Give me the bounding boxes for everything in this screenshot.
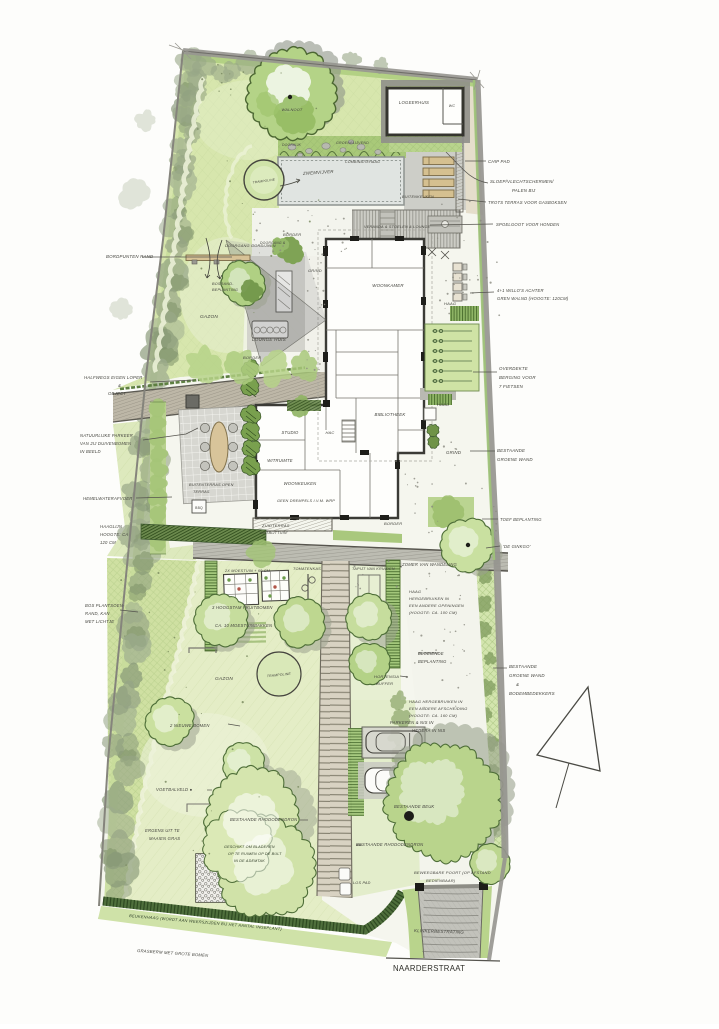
svg-text:ZOMER VAN WANDELING: ZOMER VAN WANDELING (401, 562, 457, 567)
svg-text:'ONTBIJTTUIN': 'ONTBIJTTUIN' (259, 531, 288, 535)
svg-text:TERRAS: TERRAS (193, 490, 210, 494)
svg-text:BOS PLANTSOEN-: BOS PLANTSOEN- (85, 603, 125, 608)
svg-text:BODEMBEDEKKERS: BODEMBEDEKKERS (509, 691, 555, 696)
svg-text:BOSRAND-: BOSRAND- (212, 282, 234, 286)
svg-text:IN BEELD: IN BEELD (80, 449, 101, 454)
svg-text:2X MOESTUIN + 60 CM: 2X MOESTUIN + 60 CM (224, 569, 271, 573)
svg-text:BEDIENBAAR): BEDIENBAAR) (426, 878, 456, 883)
svg-text:CHIP PAD: CHIP PAD (488, 159, 510, 164)
svg-text:VERANDA & STOELEN & LOUNGE: VERANDA & STOELEN & LOUNGE (364, 225, 431, 229)
svg-text:GESCHIKT OM BLADEREN: GESCHIKT OM BLADEREN (224, 845, 275, 849)
svg-text:BESTAANDE RHODODENDRON: BESTAANDE RHODODENDRON (230, 817, 298, 822)
svg-text:BEWEEGBARE POORT (OP AFSTAND: BEWEEGBARE POORT (OP AFSTAND (414, 870, 491, 875)
svg-text:HERGEBRUIKEN IN: HERGEBRUIKEN IN (409, 596, 449, 601)
svg-text:VAN 2IJ DUIVENBOMEN: VAN 2IJ DUIVENBOMEN (80, 441, 132, 446)
svg-text:LOUNGE HUIS: LOUNGE HUIS (252, 337, 287, 342)
svg-text:LOS PAD: LOS PAD (353, 881, 371, 885)
svg-text:BORDER: BORDER (243, 355, 261, 360)
svg-text:HEDERA IN NIS: HEDERA IN NIS (412, 728, 445, 733)
svg-text:GREN WALND (HOOGTE: 120CM): GREN WALND (HOOGTE: 120CM) (497, 296, 569, 301)
svg-text:BUITENTERRAS OPEN: BUITENTERRAS OPEN (189, 483, 234, 487)
svg-text:BIBLIOTHEEK: BIBLIOTHEEK (375, 412, 407, 417)
svg-text:EEN ANDERE AFSCHEIDING: EEN ANDERE AFSCHEIDING (409, 706, 468, 711)
svg-text:COMBINATIEHAAG: COMBINATIEHAAG (345, 160, 380, 164)
svg-text:HAAG: HAAG (409, 589, 421, 594)
svg-text:BESTAANDE: BESTAANDE (509, 664, 537, 669)
svg-text:TOMATENKAS: TOMATENKAS (293, 567, 321, 571)
svg-text:GROENE WAND: GROENE WAND (497, 457, 533, 462)
svg-text:BUFFER: BUFFER (376, 681, 393, 686)
svg-text:ERGENS UIT TE: ERGENS UIT TE (145, 828, 180, 833)
svg-text:&: & (118, 383, 121, 388)
svg-text:BESTAANDE RHODODENDRON: BESTAANDE RHODODENDRON (356, 842, 424, 847)
svg-text:BORDPUNTEN RAND: BORDPUNTEN RAND (106, 254, 154, 259)
svg-text:GAZON: GAZON (215, 676, 233, 682)
svg-text:WOONKAMER: WOONKAMER (372, 283, 404, 288)
svg-text:HAC: HAC (325, 430, 334, 435)
svg-text:GRIND: GRIND (446, 450, 462, 455)
svg-text:HAAG: HAAG (437, 402, 449, 407)
svg-text:GROENBLIJVEND: GROENBLIJVEND (336, 141, 369, 145)
svg-text:VOETBALVELD ●: VOETBALVELD ● (156, 787, 193, 792)
svg-text:EEN ANDERE OPENINGEN: EEN ANDERE OPENINGEN (409, 603, 464, 608)
svg-text:WALNOOT: WALNOOT (282, 107, 303, 112)
svg-text:7 FIETSEN: 7 FIETSEN (499, 384, 524, 389)
svg-text:OP TE RUIMEN OP DE BULT: OP TE RUIMEN OP DE BULT (228, 852, 282, 856)
svg-text:TOEF BEPLANTING: TOEF BEPLANTING (500, 517, 542, 522)
svg-text:WC: WC (449, 104, 456, 108)
svg-text:MAAIEN GRAS: MAAIEN GRAS (149, 836, 180, 841)
svg-text:BORDER: BORDER (283, 232, 301, 237)
svg-text:IN DE ADEMTAK: IN DE ADEMTAK (234, 859, 265, 863)
svg-text:DOORGANG &: DOORGANG & (260, 241, 286, 245)
svg-text:TROTS TERRAS VOOR GASBOKSEN: TROTS TERRAS VOOR GASBOKSEN (488, 200, 567, 205)
svg-text:GRIND: GRIND (308, 268, 322, 273)
svg-text:OVERDEKTE: OVERDEKTE (499, 366, 528, 371)
svg-text:ZUIDTERRAS: ZUIDTERRAS (261, 523, 290, 528)
svg-text:BORDER: BORDER (384, 521, 402, 526)
svg-text:WITRUIMTE: WITRUIMTE (267, 458, 293, 463)
svg-text:HORTENSIA: HORTENSIA (374, 674, 399, 679)
svg-text:CA. 10 MOESTUINBAKKEN: CA. 10 MOESTUINBAKKEN (215, 623, 273, 628)
svg-text:SLOEP/VLECHTSCHERMEN/: SLOEP/VLECHTSCHERMEN/ (490, 179, 554, 184)
svg-text:GEEN DREMPELS I.V.M. WRP: GEEN DREMPELS I.V.M. WRP (277, 499, 335, 503)
svg-text:&: & (516, 682, 519, 687)
svg-text:RAND, KAN: RAND, KAN (85, 611, 110, 616)
svg-text:DOORKIJK: DOORKIJK (282, 143, 301, 147)
svg-text:BESTAANDE BEUK: BESTAANDE BEUK (394, 804, 434, 809)
svg-text:NATUURLIJKE PARKEER: NATUURLIJKE PARKEER (80, 433, 133, 438)
svg-text:3 HOOGSTAM FRUITBOMEN: 3 HOOGSTAM FRUITBOMEN (212, 605, 273, 610)
svg-text:MET LICHTJE: MET LICHTJE (85, 619, 114, 624)
svg-text:HEMELWATERAFVOER: HEMELWATERAFVOER (83, 496, 132, 501)
svg-text:(HOOGTE: CA. 160 CM): (HOOGTE: CA. 160 CM) (409, 713, 457, 718)
svg-text:BERGING VOOR: BERGING VOOR (499, 375, 536, 380)
svg-text:GAZON: GAZON (200, 314, 218, 320)
svg-text:(HOOGTE: CA. 100 CM): (HOOGTE: CA. 100 CM) (409, 610, 457, 615)
svg-text:HALFWEGS EIGEN LOPER: HALFWEGS EIGEN LOPER (84, 375, 142, 380)
svg-text:SPOELGOOT VOOR HONDEN: SPOELGOOT VOOR HONDEN (496, 222, 560, 227)
svg-text:STUDIO: STUDIO (281, 430, 299, 435)
svg-text:LOGEERHUIS: LOGEERHUIS (399, 100, 429, 105)
svg-text:HAAG HERGEBRUIKEN IN: HAAG HERGEBRUIKEN IN (409, 699, 463, 704)
svg-text:PARKEREN & NIS IN: PARKEREN & NIS IN (390, 720, 434, 725)
svg-text:BBQ: BBQ (195, 506, 203, 510)
svg-text:OBJECT: OBJECT (108, 391, 126, 396)
svg-text:BEPLANTING: BEPLANTING (212, 288, 238, 292)
svg-text:HOOGTE: CA: HOOGTE: CA (100, 532, 128, 537)
svg-text:WOONKEUKEN: WOONKEUKEN (284, 481, 317, 486)
svg-text:TAPIJT VAN KRUIDEN: TAPIJT VAN KRUIDEN (352, 567, 395, 571)
svg-text:4+1 WILLO'S ACHTER: 4+1 WILLO'S ACHTER (497, 288, 544, 293)
svg-text:GROENE WAND: GROENE WAND (509, 673, 545, 678)
svg-text:BESTAANDE: BESTAANDE (497, 448, 525, 453)
svg-text:PALEN BIJ: PALEN BIJ (512, 188, 536, 193)
svg-text:BUITENKEUKEN: BUITENKEUKEN (402, 195, 434, 199)
svg-text:NAARDERSTRAAT: NAARDERSTRAAT (393, 964, 465, 973)
svg-text:HAAGLIJN: HAAGLIJN (100, 524, 123, 529)
svg-text:HAAG: HAAG (444, 301, 456, 306)
svg-text:2 NIEUWE BOMEN: 2 NIEUWE BOMEN (169, 723, 210, 728)
svg-text:120 CM: 120 CM (100, 540, 116, 545)
svg-text:BLOEIENDE: BLOEIENDE (418, 651, 444, 656)
svg-text:BEPLANTING: BEPLANTING (418, 659, 447, 664)
svg-text:'DE GINKGO': 'DE GINKGO' (503, 544, 531, 549)
